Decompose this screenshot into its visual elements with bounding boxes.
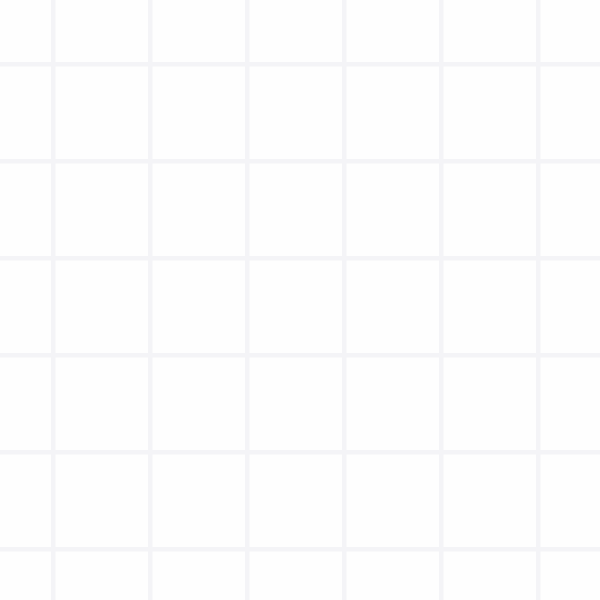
factory-scene bbox=[0, 0, 600, 600]
game-viewport bbox=[0, 0, 600, 600]
